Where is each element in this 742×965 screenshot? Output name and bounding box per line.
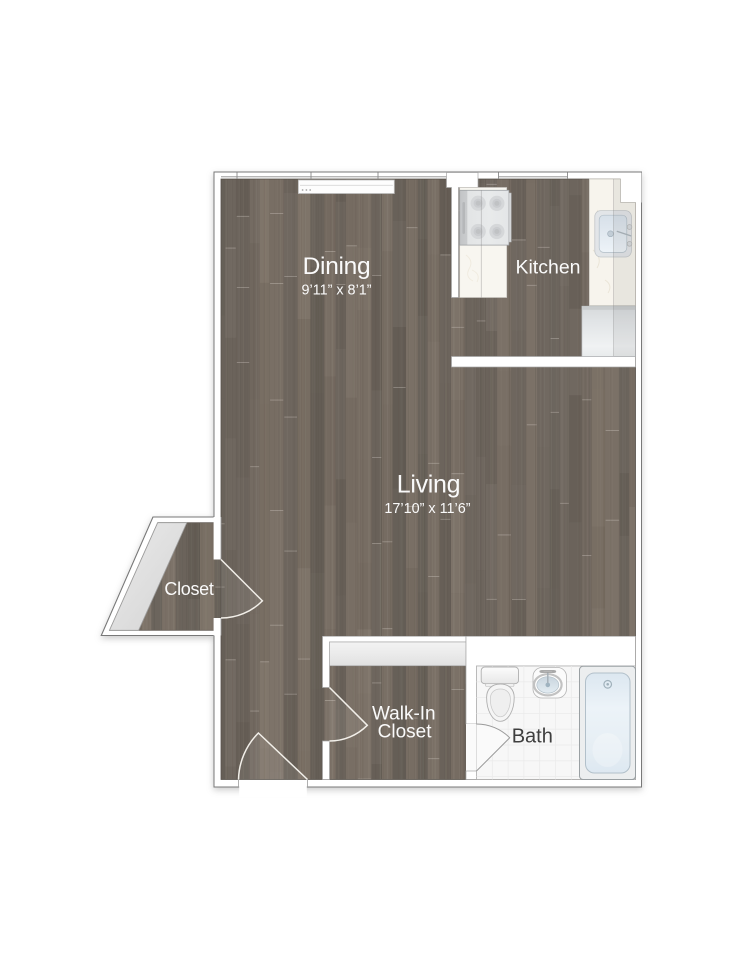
svg-text:9’11” x 8’1”: 9’11” x 8’1” (301, 283, 371, 299)
svg-text:Closet: Closet (164, 579, 214, 599)
svg-text:Kitchen: Kitchen (515, 257, 580, 279)
svg-text:Living: Living (397, 471, 461, 499)
svg-text:Dining: Dining (303, 253, 371, 280)
svg-text:17’10” x 11’6”: 17’10” x 11’6” (384, 501, 470, 517)
svg-text:Bath: Bath (512, 726, 553, 748)
svg-text:Closet: Closet (378, 722, 433, 743)
